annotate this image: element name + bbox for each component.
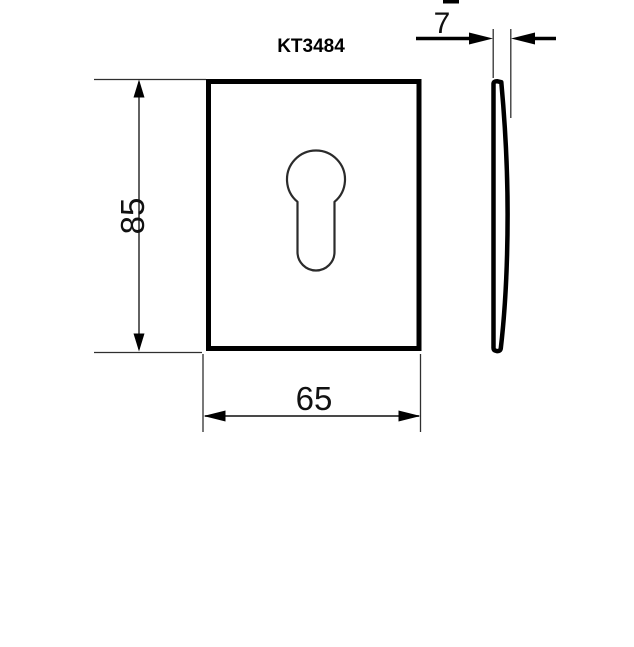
dim-width-arrow-right: [399, 411, 421, 422]
escutcheon-drawing: KT3484 85 65 7: [0, 0, 634, 647]
dim-height: 85: [94, 80, 206, 353]
dim-height-arrow-down: [134, 334, 145, 352]
dim-thickness-label: 7: [434, 7, 451, 40]
part-number-label: KT3484: [277, 36, 345, 57]
dim-height-label: 85: [114, 198, 151, 235]
keyhole-cutout: [287, 150, 345, 270]
side-view-profile: [494, 81, 508, 351]
dim-thickness-arrow-left-pointing: [511, 33, 535, 45]
technical-drawing-canvas: KT3484 85 65 7: [0, 0, 634, 647]
dim-width-arrow-left: [204, 411, 226, 422]
dim-width: 65: [203, 354, 421, 432]
dim-height-arrow-up: [134, 80, 145, 98]
dim-thickness: 7: [416, 0, 556, 118]
dim-width-label: 65: [296, 380, 333, 417]
dim-thickness-arrow-right-pointing: [469, 33, 493, 45]
front-view-outline: [209, 82, 420, 349]
dim-thickness-top-mark: [443, 0, 459, 4]
